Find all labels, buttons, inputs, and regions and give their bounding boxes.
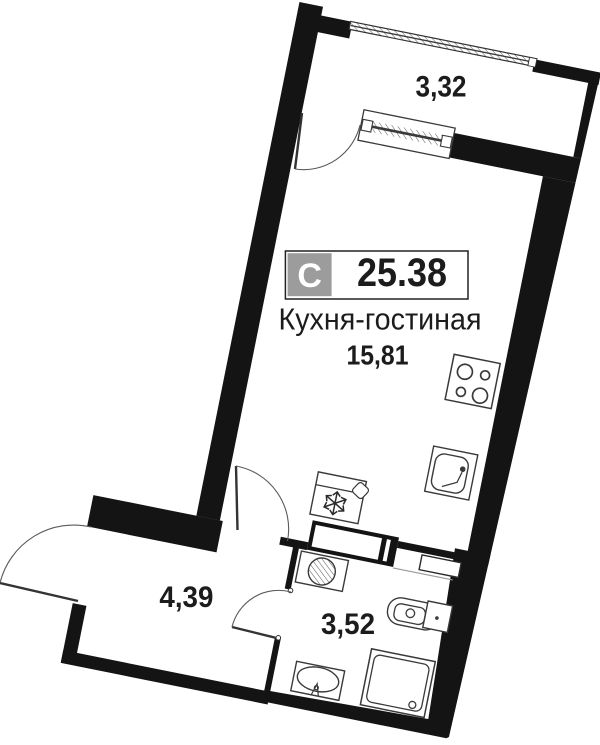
svg-text:Кухня-гостиная: Кухня-гостиная [279, 302, 482, 337]
svg-text:3,32: 3,32 [416, 71, 467, 104]
svg-text:4,39: 4,39 [159, 581, 213, 614]
svg-text:С: С [297, 257, 322, 295]
svg-text:3,52: 3,52 [321, 608, 375, 641]
svg-text:25.38: 25.38 [357, 251, 447, 295]
svg-text:15,81: 15,81 [347, 340, 409, 371]
